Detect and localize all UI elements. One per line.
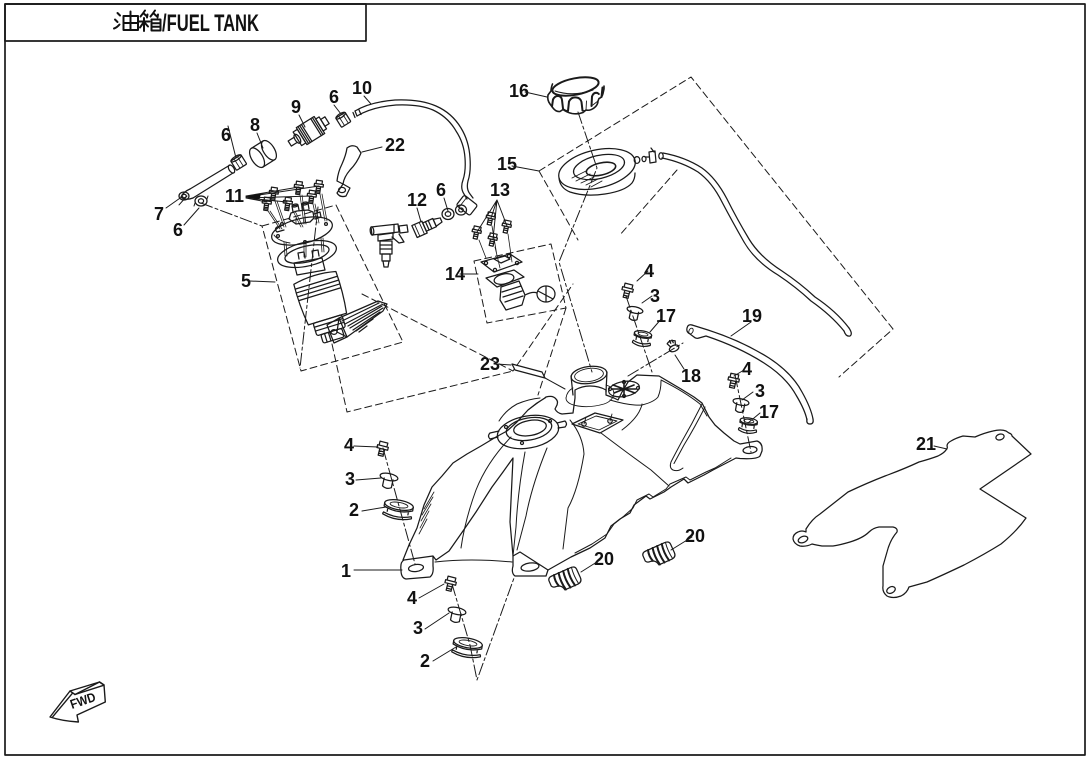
- svg-text:1: 1: [341, 561, 351, 581]
- svg-text:4: 4: [407, 588, 417, 608]
- svg-text:11: 11: [225, 186, 244, 206]
- svg-text:20: 20: [685, 526, 705, 546]
- svg-text:6: 6: [329, 87, 339, 107]
- svg-text:8: 8: [250, 115, 260, 135]
- svg-text:6: 6: [173, 220, 183, 240]
- svg-text:3: 3: [345, 469, 355, 489]
- svg-text:3: 3: [413, 618, 423, 638]
- svg-text:10: 10: [352, 78, 372, 98]
- svg-text:16: 16: [509, 81, 529, 101]
- svg-text:/FUEL TANK: /FUEL TANK: [162, 10, 259, 37]
- svg-text:7: 7: [154, 204, 164, 224]
- svg-text:17: 17: [656, 306, 676, 326]
- svg-text:12: 12: [407, 190, 427, 210]
- svg-text:4: 4: [742, 359, 752, 379]
- svg-text:19: 19: [742, 306, 762, 326]
- svg-text:3: 3: [755, 381, 765, 401]
- svg-text:6: 6: [221, 125, 231, 145]
- svg-text:9: 9: [291, 97, 301, 117]
- svg-text:21: 21: [916, 434, 936, 454]
- svg-text:20: 20: [594, 549, 614, 569]
- svg-text:2: 2: [420, 651, 430, 671]
- svg-text:6: 6: [436, 180, 446, 200]
- svg-text:17: 17: [759, 402, 779, 422]
- svg-text:15: 15: [497, 154, 517, 174]
- svg-text:4: 4: [644, 261, 654, 281]
- svg-text:13: 13: [490, 180, 510, 200]
- svg-text:22: 22: [385, 135, 405, 155]
- svg-text:4: 4: [344, 435, 354, 455]
- svg-text:2: 2: [349, 500, 359, 520]
